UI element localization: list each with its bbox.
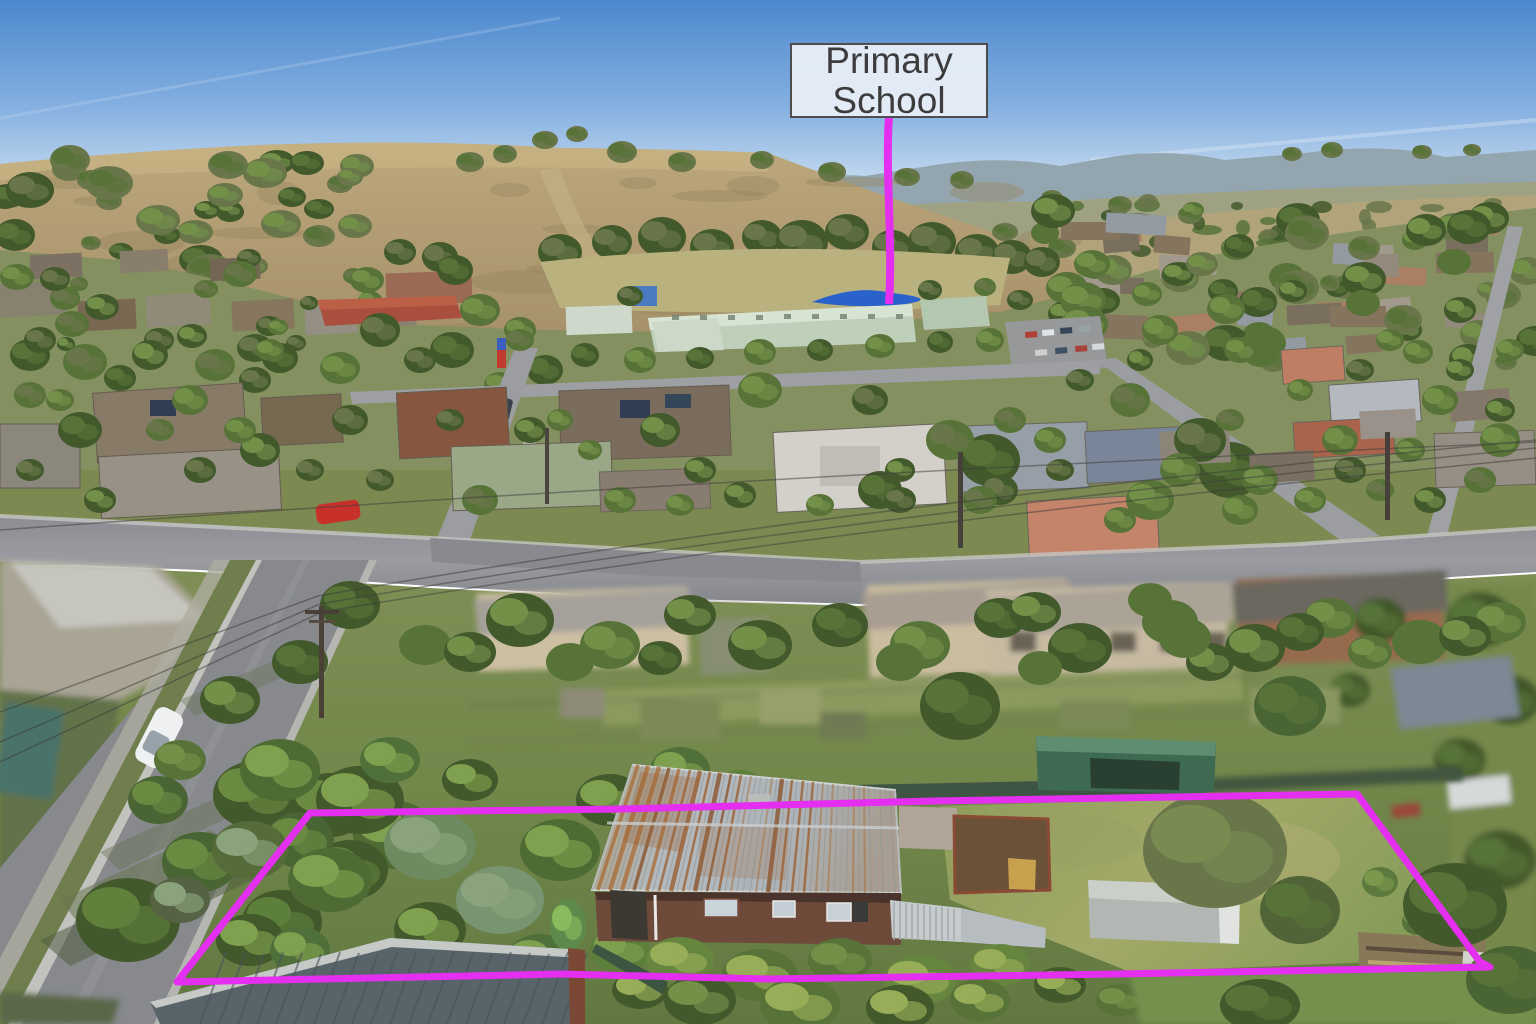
svg-text:School: School (832, 80, 945, 121)
svg-text:Primary: Primary (825, 40, 953, 81)
